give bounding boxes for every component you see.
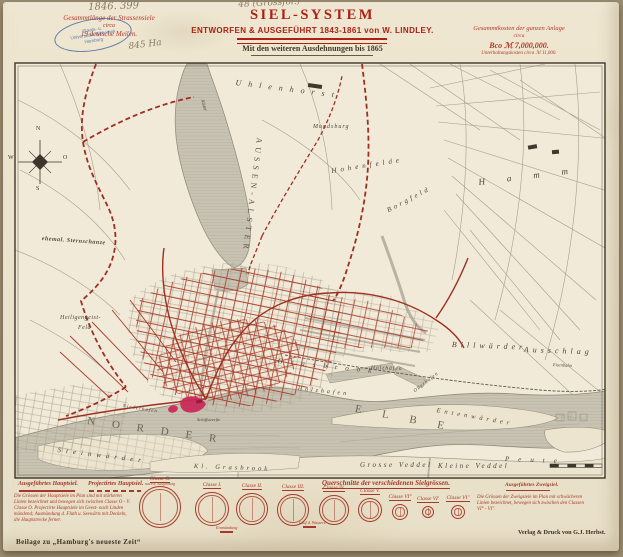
legend-annotation-line-sample [303, 526, 316, 528]
legend-class-label: Classe I. [203, 482, 222, 489]
legend-class-label: Classe IV. [323, 485, 344, 492]
imprint-publisher: Verlag & Druck von G.J. Herbst. [518, 529, 605, 536]
map-label: W [8, 155, 14, 161]
legend-class-circle [195, 492, 229, 526]
legend-class-circle [392, 504, 408, 520]
legend-class-label: Classe III. [282, 484, 304, 491]
legend-class-circle [358, 498, 382, 522]
note-right-line4: Unterhaltungskosten circa ℳ 11,000. [428, 51, 610, 58]
legend-note-right: Die Grössen der Zweigsiele im Plan mit s… [477, 495, 584, 513]
scanned-map-photo: Gesammtlänge der Strassensiele circa 19 … [0, 0, 623, 557]
legend-executed-branch-sewer: Ausgeführtes Zweigsiel. [505, 482, 558, 488]
map-label: Heiligengeist- [60, 315, 101, 321]
note-right-line2: circa [428, 33, 610, 40]
map-label: Kleine Veddel [438, 463, 509, 470]
legend-class-label: Classe II. [242, 483, 263, 490]
map-label: N [36, 126, 40, 132]
legend-annotation: Einmündung [216, 525, 237, 530]
legend-executed-main-sewer: Ausgeführtes Hauptsiel. [18, 481, 78, 487]
map-label: S [36, 186, 39, 192]
map-label: Holzhäfen [371, 366, 403, 373]
map-label: Feld [78, 325, 91, 331]
map-label: Eisenbahn [553, 363, 572, 368]
imprint-supplement: Beilage zu „Hamburg's neueste Zeit“ [16, 538, 141, 546]
legend-class-circle [422, 506, 434, 518]
legend-class-label: Classe VI'' [446, 495, 469, 502]
note-right-line1: Gesammtkosten der ganzen Anlage [428, 25, 610, 33]
legend-projected-line-sample [89, 490, 141, 493]
map-label: O [63, 155, 67, 161]
note-right-line3: Bco ℳ 7,000,000. [428, 41, 610, 51]
legend-note-right-line: VI° - VI''. [477, 507, 584, 513]
map-canvas [0, 0, 623, 557]
legend-note-left-line: die Hauptstrecke ferner. [14, 518, 130, 524]
legend-class-circle [451, 505, 465, 519]
map-label: Mundsburg [313, 124, 349, 130]
legend-class-circle [236, 493, 268, 525]
legend-branch-line-sample [506, 490, 550, 491]
map-label: Grosse Veddel [360, 462, 432, 469]
dedication-rule [251, 55, 373, 56]
legend-annotation: Lauf d. Wassers [299, 520, 326, 525]
map-subtitle: ENTWORFEN & AUSGEFÜHRT 1843-1861 von W. … [160, 26, 465, 35]
map-label: Schiffswerfte [197, 418, 220, 423]
note-total-cost: Gesammtkosten der ganzen Anlage circa Bc… [428, 25, 610, 57]
map-extension-note: Mit den weiteren Ausdehnungen bis 1865 [210, 44, 415, 53]
legend-executed-line-sample [19, 490, 75, 493]
map-title: SIEL-SYSTEM [225, 7, 400, 24]
legend-class-sublabel: nach d. Ausführung [134, 482, 186, 486]
legend-class-circle [139, 486, 181, 528]
legend-annotation-line-sample [220, 531, 233, 533]
legend-note-left: Die Grössen der Hauptsiele im Plan sind … [14, 494, 130, 524]
pencil-shelfmark: 1846. 399 [88, 0, 139, 13]
